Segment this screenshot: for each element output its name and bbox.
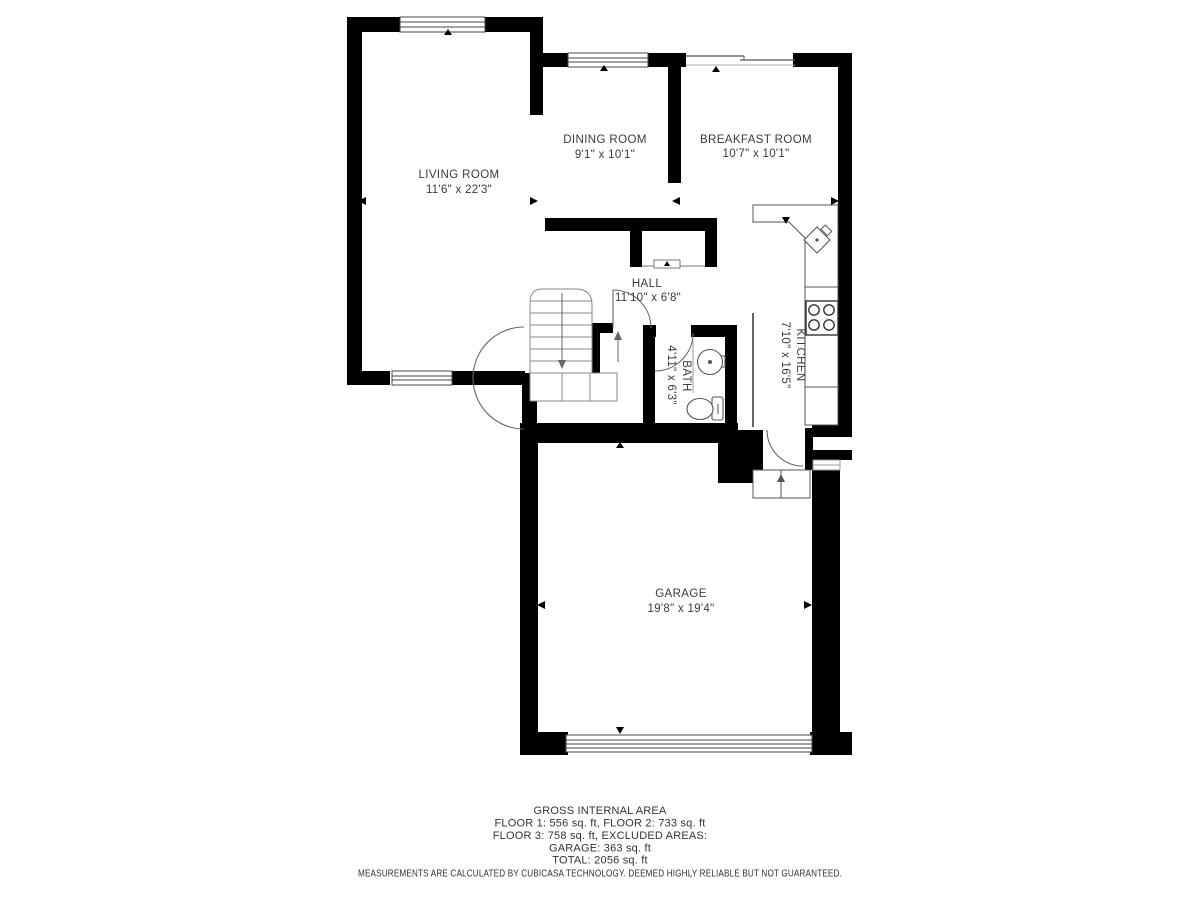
- garage-area: GARAGE: 363 sq. ft: [549, 843, 651, 855]
- gross-internal-area-title: GROSS INTERNAL AREA: [534, 805, 667, 817]
- dining-room-label: DINING ROOM: [563, 134, 647, 146]
- hall-label: HALL: [632, 278, 663, 290]
- dining-room-dims: 9'1" x 10'1": [575, 149, 635, 161]
- bath-sink-icon: [698, 350, 726, 375]
- window-living-bottom: [392, 371, 452, 385]
- bath-dims: 4'11" x 6'3": [665, 345, 677, 404]
- kitchen-label: KITCHEN: [794, 328, 806, 381]
- garage-dims: 19'8" x 19'4": [648, 603, 715, 615]
- living-room-label: LIVING ROOM: [418, 169, 499, 181]
- footer-area-summary: GROSS INTERNAL AREA FLOOR 1: 556 sq. ft,…: [358, 805, 842, 880]
- floor3-excluded-area: FLOOR 3: 758 sq. ft, EXCLUDED AREAS:: [493, 830, 707, 842]
- floorplan-canvas: LIVING ROOM 11'6" x 22'3" DINING ROOM 9'…: [0, 0, 1200, 900]
- stove-icon: [806, 301, 838, 335]
- sliding-door-breakfast: [686, 56, 795, 65]
- breakfast-room-dims: 10'7" x 10'1": [723, 148, 790, 160]
- kitchen-dims: 7'10" x 16'5": [779, 322, 791, 389]
- window-living-top: [400, 17, 485, 32]
- window-dining-top: [568, 53, 648, 67]
- hall-closet: [642, 260, 705, 268]
- garage-landing: [753, 470, 810, 498]
- garage-label: GARAGE: [655, 588, 707, 600]
- stairs-up-arrow: [614, 331, 622, 362]
- total-area: TOTAL: 2056 sq. ft: [552, 855, 648, 867]
- floor1-floor2-area: FLOOR 1: 556 sq. ft, FLOOR 2: 733 sq. ft: [495, 818, 706, 830]
- breakfast-room-label: BREAKFAST ROOM: [700, 134, 812, 146]
- bath-label: BATH: [680, 360, 692, 391]
- garage-entry-door-arc: [767, 430, 803, 466]
- garage-door: [566, 735, 812, 752]
- kitchen-fixtures: [753, 205, 838, 427]
- hall-dims: 11'10" x 6'8": [615, 292, 681, 304]
- floorplan-page: LIVING ROOM 11'6" x 22'3" DINING ROOM 9'…: [0, 0, 1200, 900]
- kitchen-sink-icon: [804, 225, 832, 253]
- toilet-icon: [687, 397, 723, 420]
- measurement-disclaimer: MEASUREMENTS ARE CALCULATED BY CUBICASA …: [358, 868, 842, 880]
- living-room-dims: 11'6" x 22'3": [426, 184, 492, 196]
- exterior-step: [813, 460, 840, 470]
- staircase: [530, 289, 622, 401]
